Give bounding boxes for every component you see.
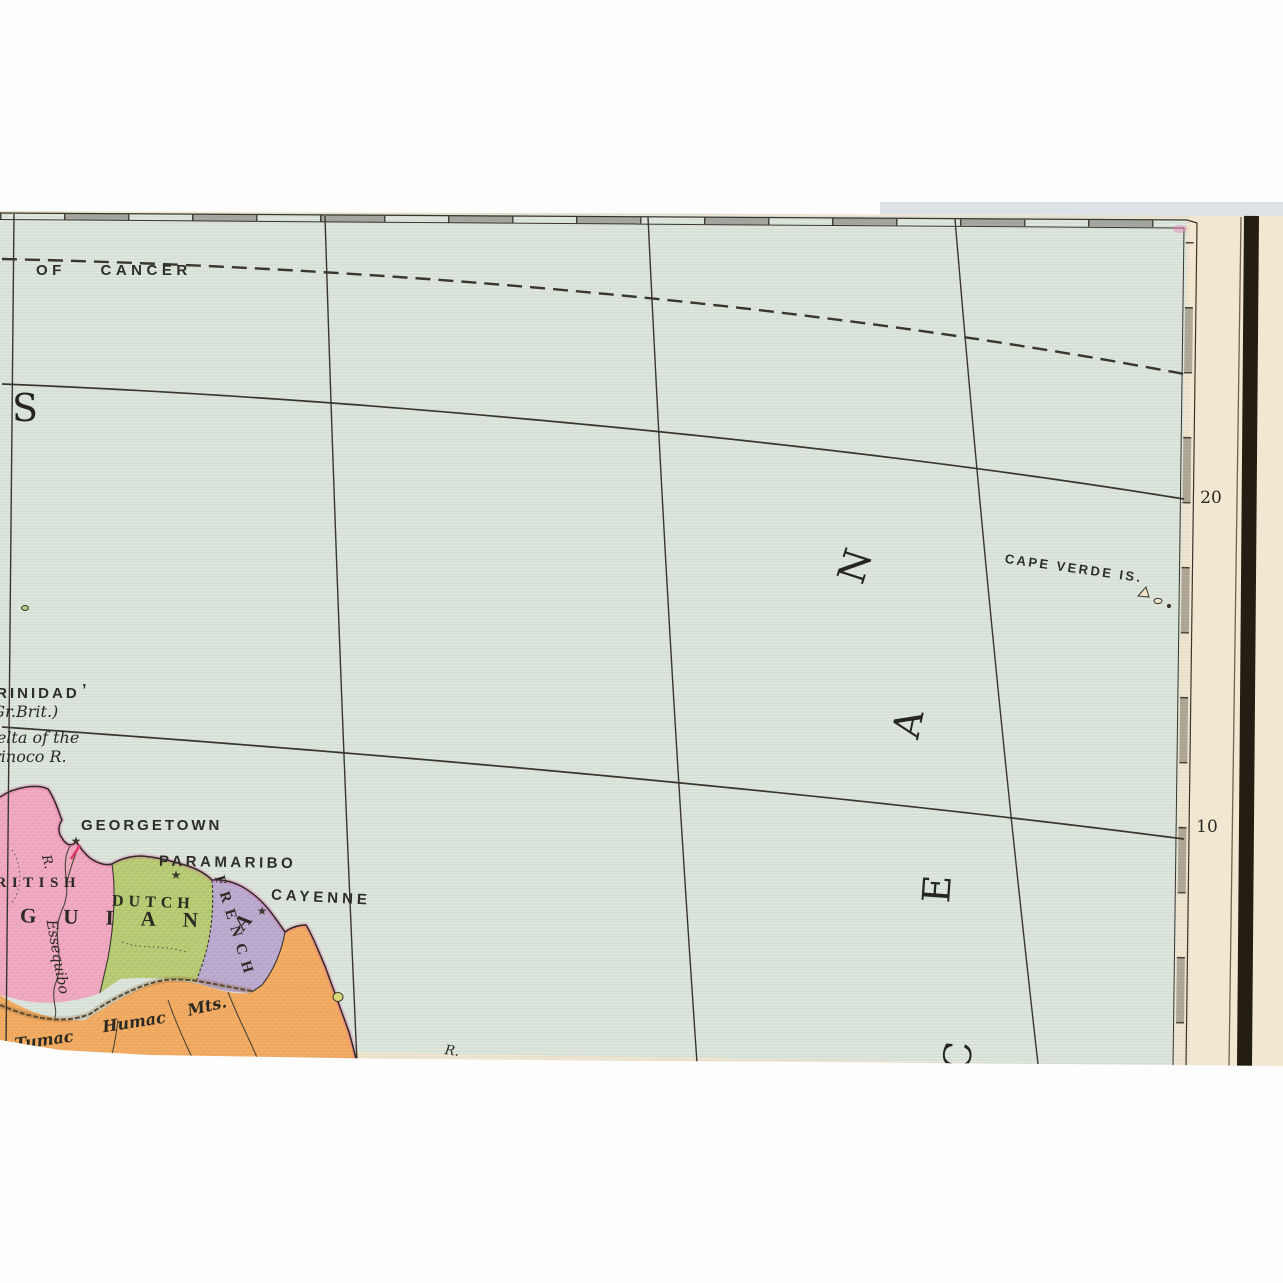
delta-label-line1: Delta of the: [0, 728, 79, 747]
latitude-10-label: 10: [1196, 817, 1218, 837]
georgetown-star-icon: ★: [71, 835, 82, 847]
ocean-letter-n: N: [829, 543, 881, 588]
paramaribo-star-icon: ★: [171, 869, 182, 881]
map-labels: OF CANCER S CAPE VERDE IS. N A E C 20 10…: [0, 0, 1283, 1283]
cayenne-label: CAYENNE: [271, 886, 372, 908]
mts-label-humac: Humac: [101, 1008, 167, 1037]
ocean-letter-e: E: [914, 874, 960, 905]
page-behind-edge: [880, 202, 1283, 216]
georgetown-label: GEORGETOWN: [81, 817, 222, 834]
trinidad-label: TRINIDAD: [0, 685, 80, 702]
ocean-letter-a: A: [884, 706, 933, 742]
delta-label-line2: Orinoco R.: [0, 747, 67, 766]
map-paper-fragment: OF CANCER S CAPE VERDE IS. N A E C 20 10…: [0, 0, 1283, 1283]
british-label: BRITISH: [0, 875, 81, 892]
stray-letter-s: S: [12, 386, 38, 430]
trinidad-tick-mark: ’: [82, 682, 89, 700]
tropic-of-cancer-label: OF CANCER: [36, 262, 192, 279]
bottom-river-abbrev: R.: [444, 1042, 461, 1060]
cayenne-star-icon: ★: [257, 905, 268, 917]
demerara-river-abbrev: R.: [38, 853, 56, 870]
cape-verde-label: CAPE VERDE IS.: [1004, 551, 1144, 585]
ocean-letter-c: C: [935, 1040, 981, 1073]
mts-label-mts: Mts.: [186, 992, 229, 1019]
mts-label-tumac: Tumac: [13, 1026, 74, 1053]
latitude-20-label: 20: [1200, 488, 1222, 508]
gr-brit-label: (Gr.Brit.): [0, 702, 58, 721]
photo-of-map: OF CANCER S CAPE VERDE IS. N A E C 20 10…: [0, 0, 1283, 1283]
essequibo-river-label: Essequibo: [43, 919, 72, 996]
